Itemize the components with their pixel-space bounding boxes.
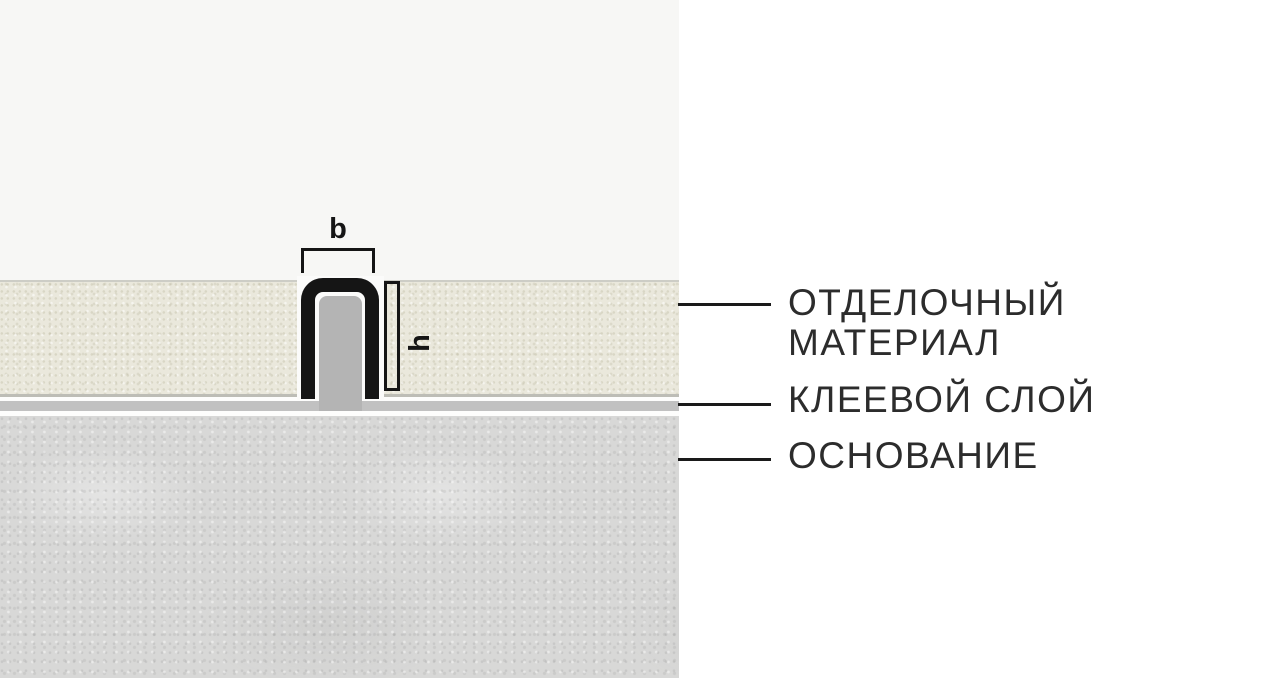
profile-installation-diagram: b h ОТДЕЛОЧНЫЙ МАТЕРИАЛ КЛЕЕВОЙ СЛОЙ ОСН…	[0, 0, 1280, 678]
joint-filler	[319, 296, 362, 411]
callout-label-adhesive: КЛЕЕВОЙ СЛОЙ	[788, 380, 1095, 420]
callout-label-finish-material-line1: ОТДЕЛОЧНЫЙ	[788, 283, 1066, 323]
callout-line-finish-material	[678, 303, 771, 306]
height-dimension-label: h	[407, 323, 433, 363]
callout-line-adhesive	[678, 403, 771, 406]
callout-label-base: ОСНОВАНИЕ	[788, 436, 1039, 476]
width-dimension-label: b	[301, 214, 375, 244]
callout-label-finish-material: ОТДЕЛОЧНЫЙ МАТЕРИАЛ	[788, 283, 1066, 363]
height-dimension-bracket	[384, 281, 400, 391]
base-layer	[0, 416, 679, 678]
callout-line-base	[678, 458, 771, 461]
diagram-panel: b h	[0, 0, 679, 678]
callout-label-finish-material-line2: МАТЕРИАЛ	[788, 323, 1066, 363]
width-dimension-bracket	[301, 248, 375, 273]
